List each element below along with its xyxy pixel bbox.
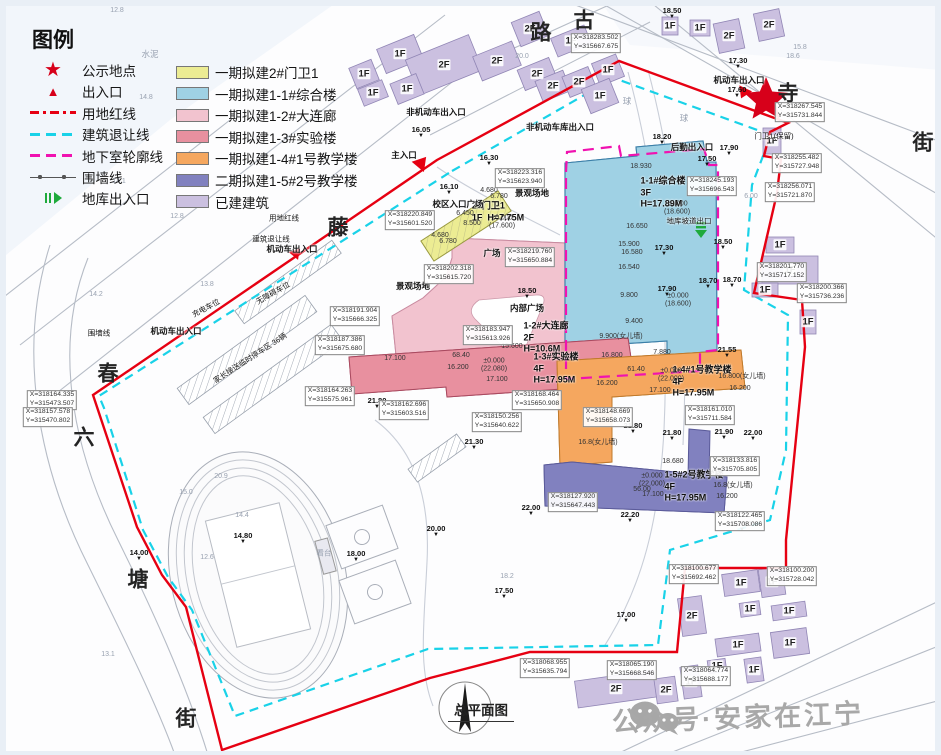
proposed-buildings (349, 141, 745, 513)
entrance-triangle (412, 152, 433, 172)
existing-building (766, 237, 794, 253)
existing-building (713, 19, 745, 54)
existing-building (715, 633, 761, 657)
existing-building (762, 256, 818, 284)
existing-building (680, 665, 702, 699)
existing-building (551, 25, 592, 57)
running-track (143, 433, 372, 718)
existing-building (739, 601, 761, 618)
public-notice-star (744, 77, 788, 119)
plan-title: 总平面图 (448, 699, 514, 722)
existing-building (770, 628, 809, 659)
existing-building (744, 657, 764, 683)
existing-building (771, 601, 807, 621)
building-teaching-2-wing (688, 429, 710, 479)
existing-building (722, 570, 761, 597)
frame-edge (935, 0, 941, 755)
existing-building (707, 658, 727, 673)
existing-building (511, 11, 549, 46)
site-plan-canvas: 1F1F2F1F1F2F2F2F1F2F2F1F1F1F1F2F2F1F1F1F… (0, 0, 941, 755)
existing-building (758, 566, 786, 597)
existing-building (753, 9, 784, 42)
existing-building (690, 20, 710, 36)
frame-edge (0, 0, 941, 6)
frame-edge (0, 751, 941, 755)
existing-building (473, 41, 522, 81)
existing-building (662, 17, 678, 35)
frame-edge (0, 0, 6, 755)
site-plan-map (0, 0, 941, 755)
terrain-wash (0, 0, 340, 260)
